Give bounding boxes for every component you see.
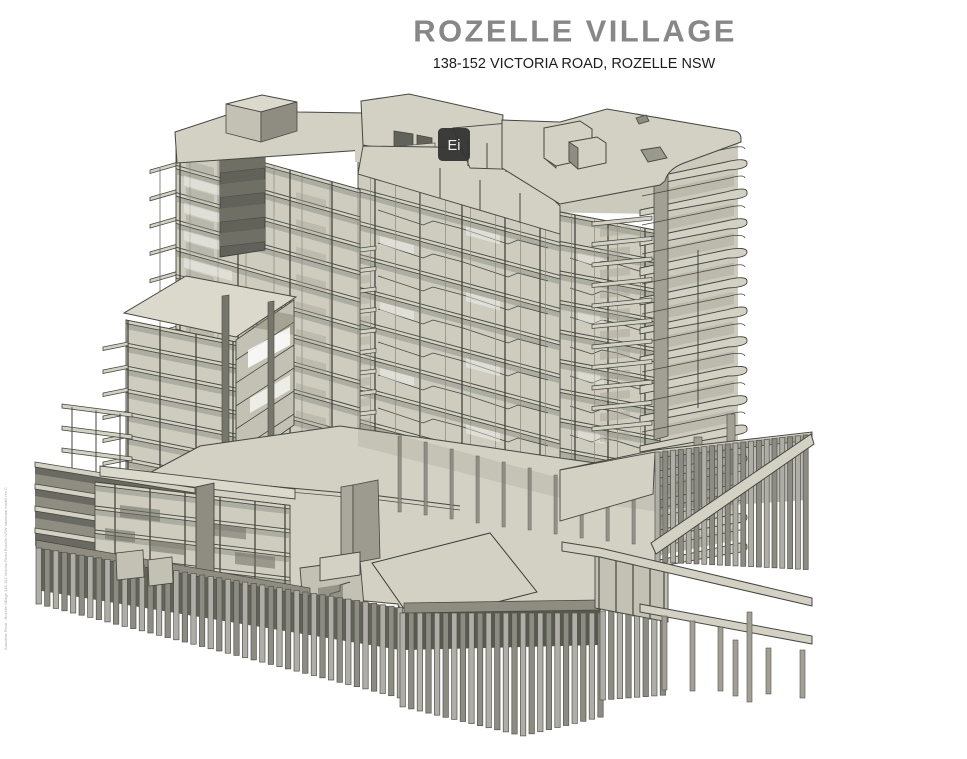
svg-text:ROZELLE VILLAGE: ROZELLE VILLAGE (413, 14, 737, 49)
svg-text:Ei: Ei (448, 138, 461, 154)
svg-text:Autodesk Revit - Rozelle Villa: Autodesk Revit - Rozelle Village 138-152… (3, 487, 8, 650)
svg-text:138-152 VICTORIA ROAD, ROZELLE: 138-152 VICTORIA ROAD, ROZELLE NSW (433, 56, 716, 72)
